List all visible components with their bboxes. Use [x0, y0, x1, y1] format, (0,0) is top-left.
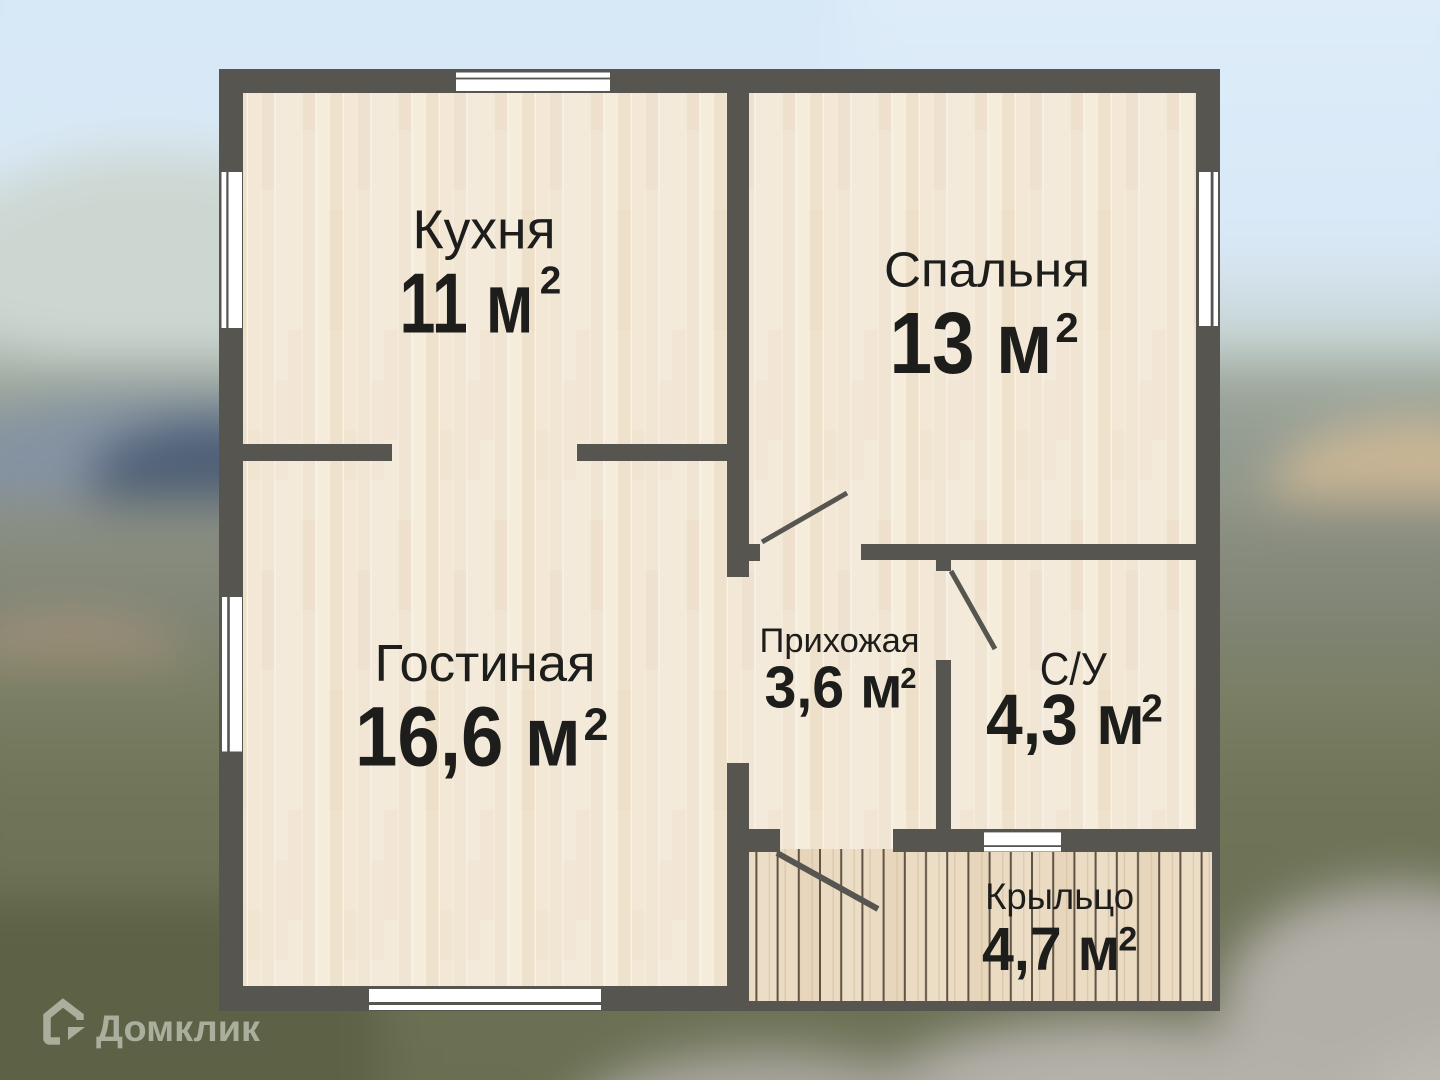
svg-text:2: 2 [900, 663, 916, 695]
svg-text:11 м: 11 м [400, 256, 534, 352]
svg-text:Спальня: Спальня [884, 242, 1090, 297]
svg-text:2: 2 [1118, 920, 1137, 958]
svg-text:Прихожая: Прихожая [760, 622, 920, 660]
svg-text:13 м: 13 м [890, 295, 1053, 392]
svg-text:4,3 м: 4,3 м [986, 680, 1145, 760]
svg-text:3,6 м: 3,6 м [765, 656, 903, 721]
svg-text:16,6 м: 16,6 м [355, 690, 581, 784]
svg-text:Домклик: Домклик [96, 1008, 260, 1049]
svg-text:Крыльцо: Крыльцо [985, 876, 1134, 917]
svg-text:2: 2 [540, 259, 562, 302]
svg-text:2: 2 [1055, 304, 1078, 351]
svg-text:2: 2 [583, 699, 608, 750]
svg-text:Кухня: Кухня [413, 199, 556, 260]
svg-text:2: 2 [1141, 688, 1163, 731]
svg-text:Гостиная: Гостиная [375, 634, 596, 692]
svg-text:4,7 м: 4,7 м [982, 915, 1120, 984]
